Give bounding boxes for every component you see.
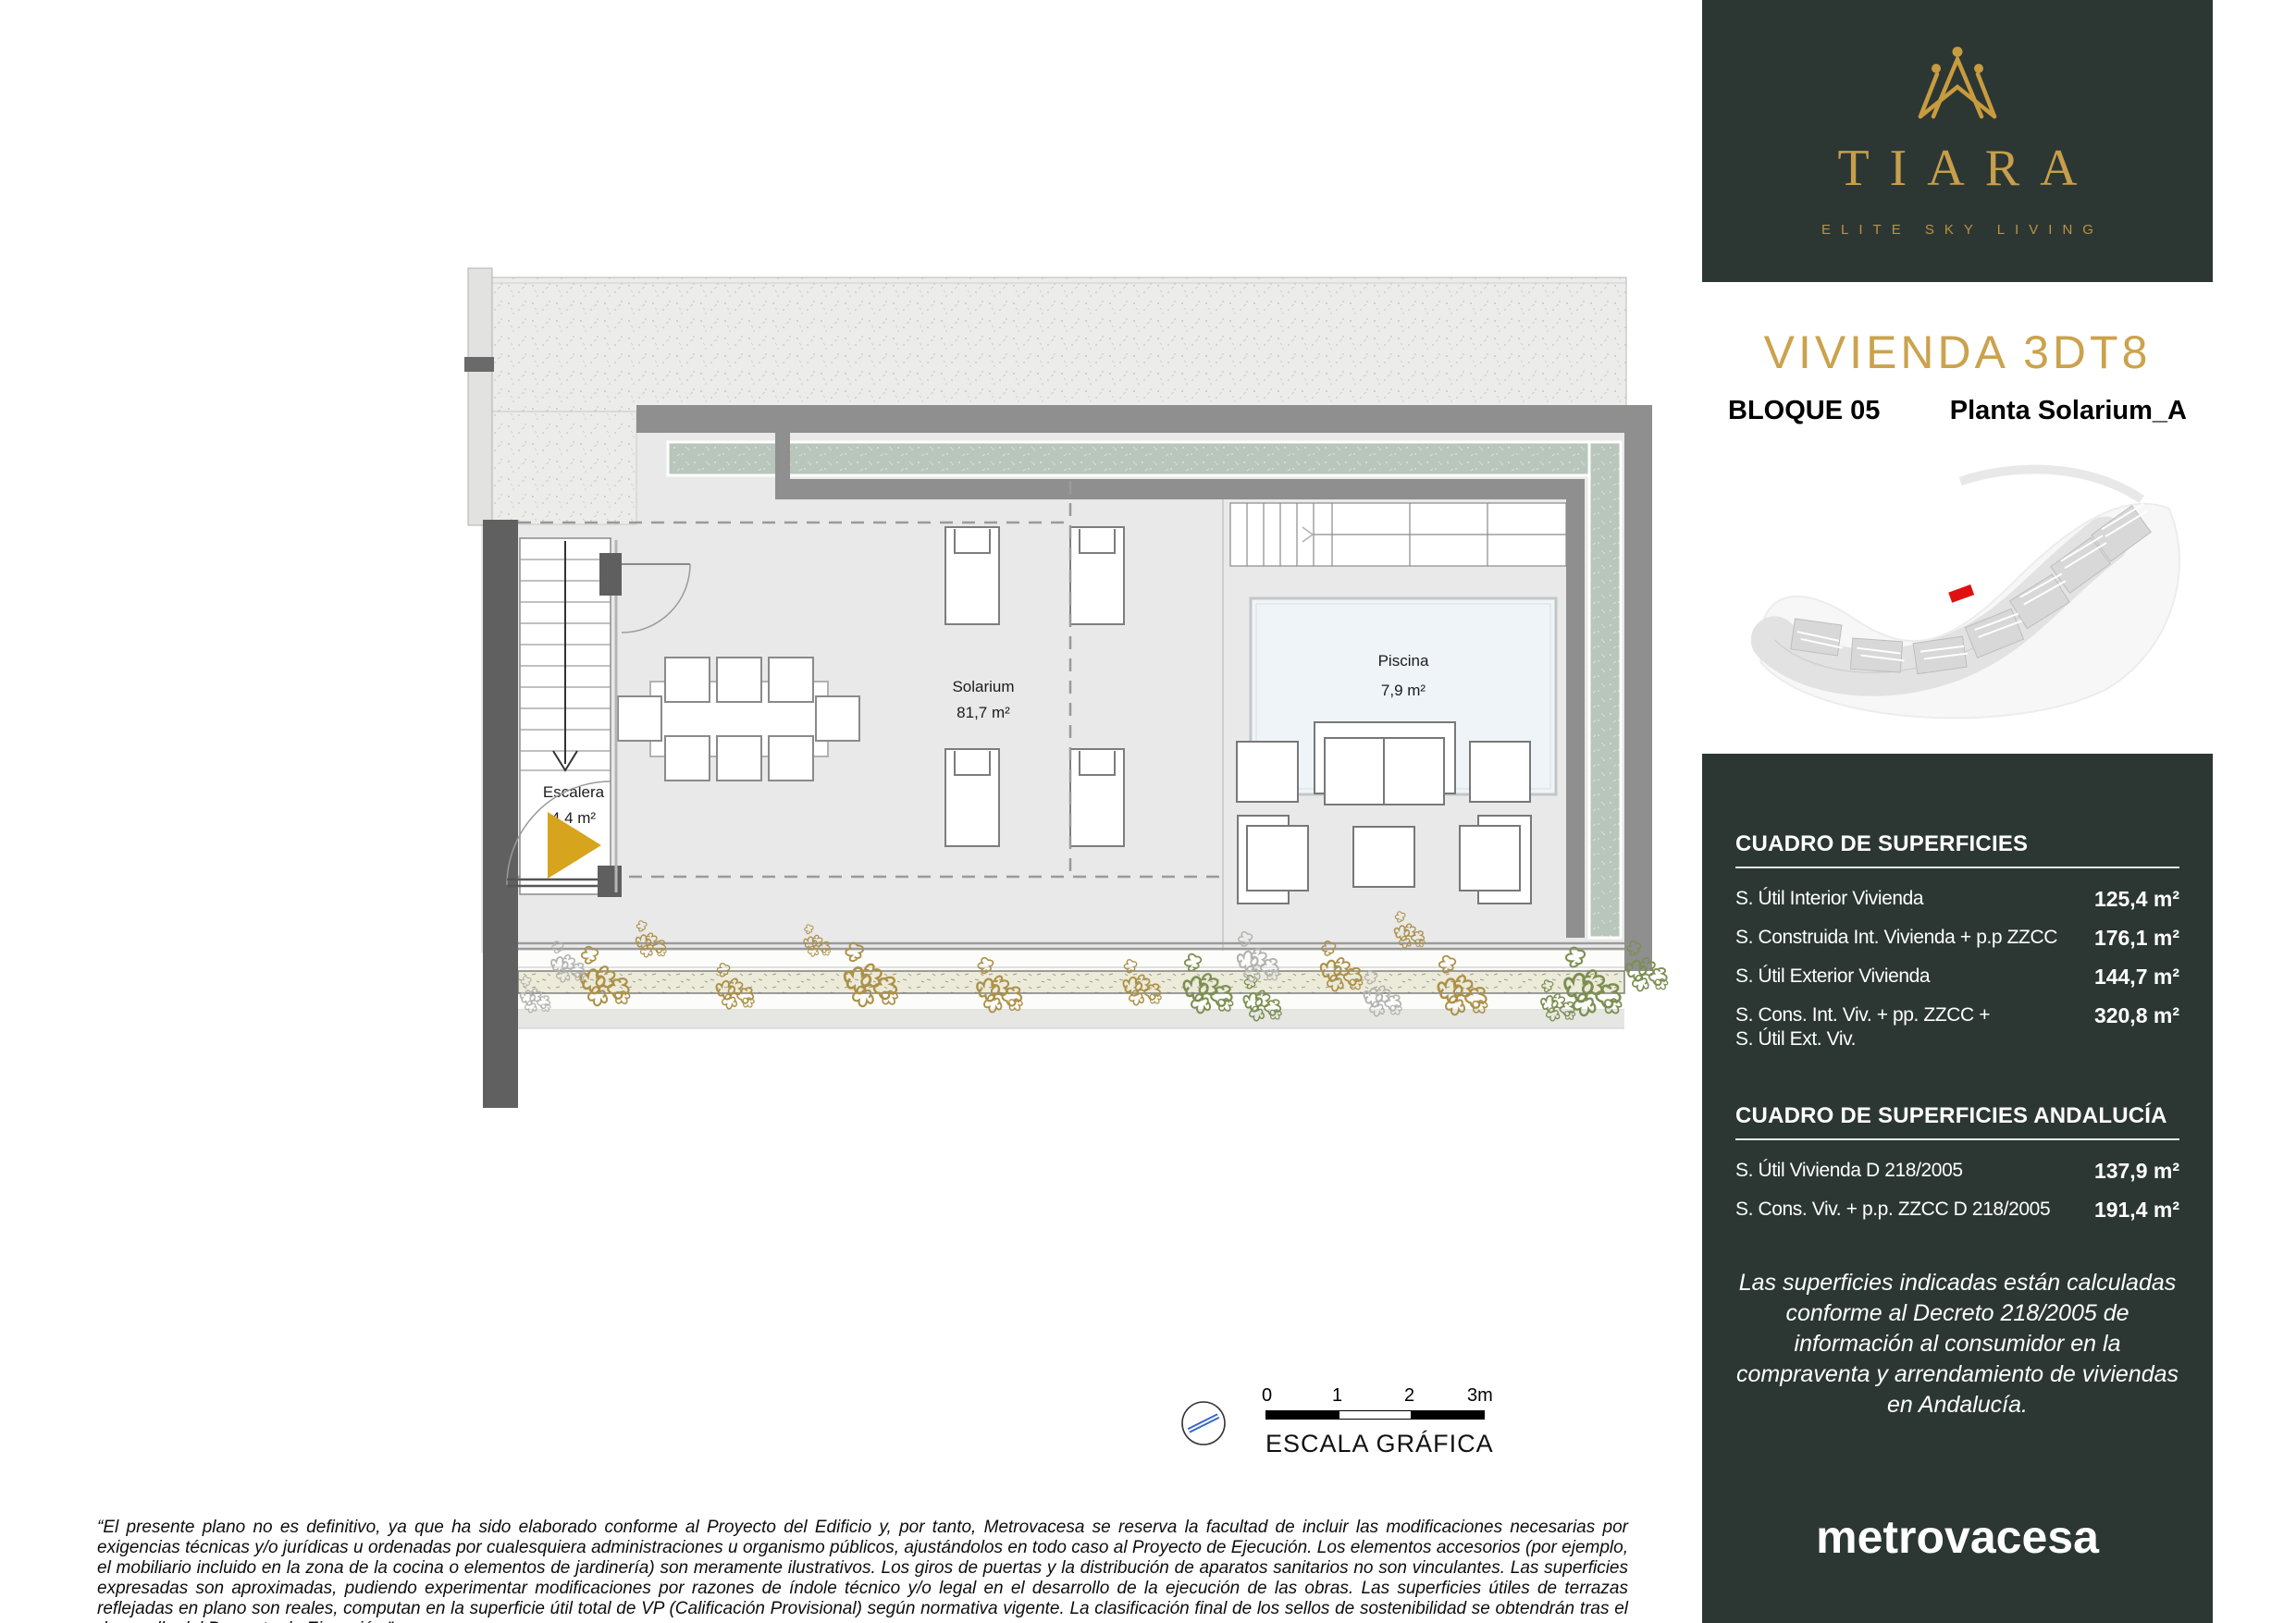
- decree-note: Las superficies indicadas están calculad…: [1735, 1268, 2179, 1420]
- table-row: S. Útil Exterior Vivienda 144,7 m²: [1735, 965, 2179, 989]
- developer-logo: metrovacesa: [1702, 1510, 2213, 1564]
- floor-plan-label: Planta Solarium_A: [1950, 396, 2187, 426]
- table-title: CUADRO DE SUPERFICIES: [1735, 831, 2179, 857]
- inner-wall-top: [775, 479, 1585, 499]
- table-title: CUADRO DE SUPERFICIES ANDALUCÍA: [1735, 1103, 2179, 1129]
- surface-table: CUADRO DE SUPERFICIES S. Útil Interior V…: [1735, 831, 2179, 1051]
- table-row: S. Cons. Int. Viv. + pp. ZZCC + S. Útil …: [1735, 1003, 2179, 1051]
- deck-steps: [1230, 503, 1566, 566]
- scale-tick: 3m: [1467, 1385, 1493, 1407]
- left-wall-strip: [468, 268, 492, 525]
- north-compass-icon: [1180, 1400, 1227, 1446]
- gravel-band-left: [481, 412, 636, 524]
- unit-location-marker: [1948, 584, 1974, 603]
- outer-wall-right: [1624, 405, 1652, 971]
- table-row: S. Útil Vivienda D 218/2005 137,9 m²: [1735, 1159, 2179, 1183]
- legal-disclaimer: “El presente plano no es definitivo, ya …: [97, 1518, 1628, 1623]
- site-plan-render: [1743, 442, 2196, 736]
- brand-tagline: ELITE SKY LIVING: [1811, 222, 2104, 238]
- scale-tick: 0: [1262, 1385, 1272, 1407]
- inner-wall-right: [1566, 479, 1585, 938]
- gravel-band: [481, 277, 1626, 412]
- scale-segment: [1265, 1410, 1339, 1420]
- solarium-area-label: 81,7 m²: [957, 704, 1010, 721]
- scale-label: ESCALA GRÁFICA: [1265, 1430, 1494, 1458]
- table-row: S. Construida Int. Vivienda + p.p ZZCC 1…: [1735, 926, 2179, 950]
- table-row: S. Cons. Viv. + p.p. ZZCC D 218/2005 191…: [1735, 1198, 2179, 1222]
- surfaces-panel: CUADRO DE SUPERFICIES S. Útil Interior V…: [1702, 754, 2213, 1623]
- planter-top: [668, 442, 1621, 475]
- block-label: BLOQUE 05: [1728, 396, 1880, 426]
- scale-tick: 1: [1332, 1385, 1342, 1407]
- divider: [1735, 1138, 2179, 1140]
- scale-bar: 0 1 2 3m ESCALA GRÁFICA: [1265, 1385, 1506, 1487]
- left-wall-tick: [464, 357, 494, 372]
- scale-segment: [1412, 1410, 1485, 1420]
- divider: [1735, 867, 2179, 868]
- pool-label: Piscina: [1378, 652, 1429, 670]
- planter-right: [1589, 442, 1621, 938]
- pool-area-label: 7,9 m²: [1381, 682, 1426, 699]
- unit-title: VIVIENDA 3DT8: [1702, 326, 2213, 379]
- scale-segment: [1339, 1410, 1412, 1420]
- table-row: S. Útil Interior Vivienda 125,4 m²: [1735, 887, 2179, 911]
- crown-icon: [1902, 44, 2013, 129]
- brand-name: TIARA: [1817, 139, 2097, 198]
- left-wall-pillar: [483, 520, 518, 1108]
- outer-wall-top: [636, 405, 1652, 433]
- plan-sheet: Piscina 7,9 m²: [0, 0, 2296, 1623]
- solarium-label: Solarium: [952, 678, 1014, 695]
- stair-label: Escalera: [543, 783, 605, 801]
- brand-panel: TIARA ELITE SKY LIVING: [1702, 0, 2213, 282]
- floor-plan: Piscina 7,9 m²: [463, 259, 1721, 1128]
- surface-table-andalucia: CUADRO DE SUPERFICIES ANDALUCÍA S. Útil …: [1735, 1103, 2179, 1222]
- scale-tick: 2: [1404, 1385, 1414, 1407]
